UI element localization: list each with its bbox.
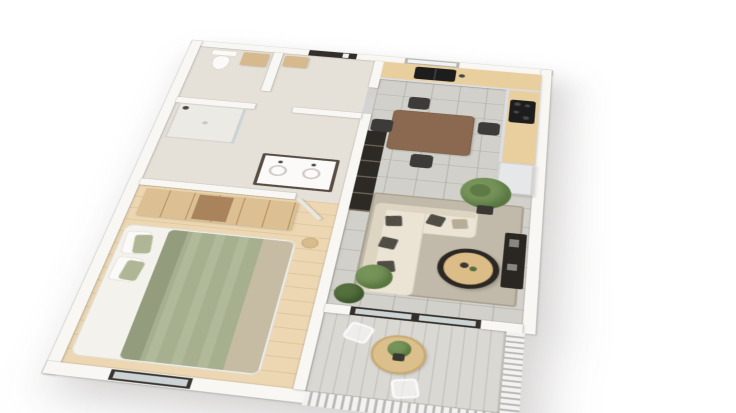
bed-pillow-sage-1 <box>132 235 154 254</box>
dining-chair-north <box>407 97 430 110</box>
hall-cabinet <box>282 56 310 69</box>
apartment-floorplan <box>34 40 552 413</box>
burner-2 <box>525 104 531 107</box>
dining-table <box>386 109 475 156</box>
balcony-ghost-chair-2 <box>390 378 420 399</box>
dining-plant-pot <box>476 205 493 215</box>
burner-1 <box>514 102 521 106</box>
floorplan-3d-wrapper <box>34 40 552 413</box>
burner-3 <box>513 110 519 113</box>
burner-4 <box>523 116 530 120</box>
cooktop <box>508 99 536 124</box>
wc-cabinet <box>239 52 270 67</box>
entry-door-glass-strip <box>342 53 349 58</box>
dining-chair-east <box>477 122 500 136</box>
sofa-pillow-5 <box>452 219 469 229</box>
console-item-2 <box>507 264 517 271</box>
sofa-pillow-1 <box>385 216 402 227</box>
balcony-plant-pot <box>392 353 405 362</box>
console-item-1 <box>509 239 519 248</box>
floorplan-scene <box>0 0 736 413</box>
dining-chair-south <box>409 154 434 169</box>
